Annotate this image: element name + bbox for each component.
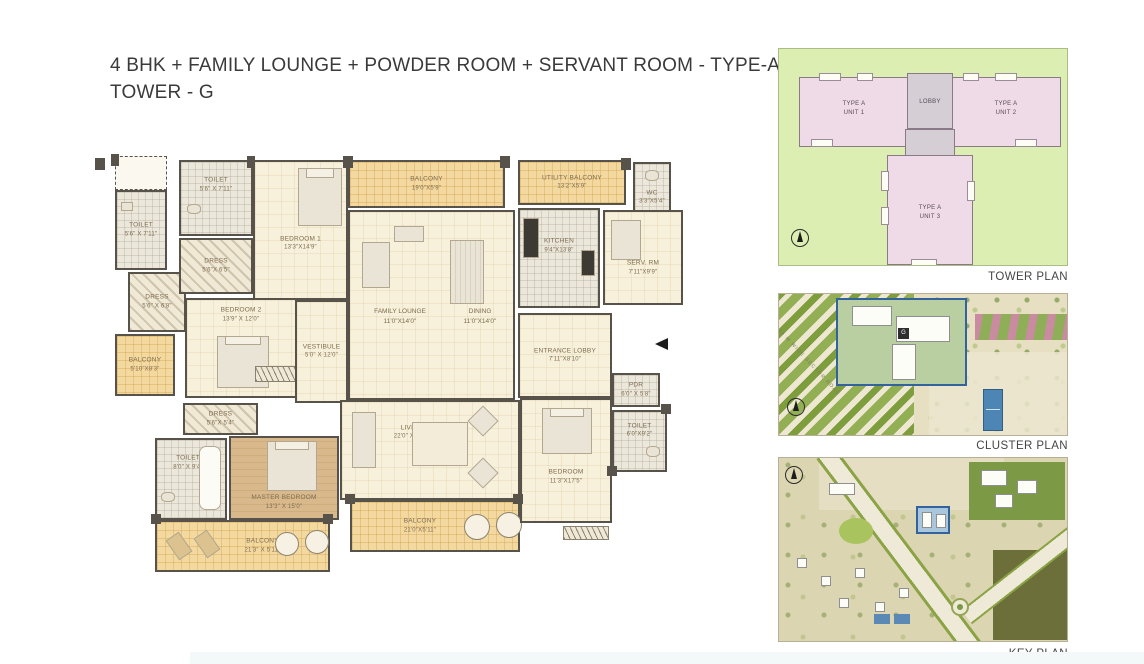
tower-plan-caption: TOWER PLAN <box>778 271 1068 283</box>
wall-pier <box>111 154 119 166</box>
room-bedroom-3: BEDROOM11'3"X17'5" <box>520 398 612 523</box>
sofa-icon <box>352 412 376 468</box>
building-footprint <box>875 602 885 612</box>
balcony-notch <box>963 73 979 81</box>
wall-pier <box>513 494 523 504</box>
room-dress-1: DRESS5'6"X 6'5" <box>179 238 253 294</box>
room-toilet-1: TOILET5'6" X 7'11" <box>115 190 167 270</box>
tennis-court <box>983 389 1003 431</box>
building-footprint <box>797 558 807 568</box>
round-table-icon <box>275 532 299 556</box>
green-cluster <box>969 462 1065 520</box>
room-dress-3: DRESS5'6"X 5'4" <box>183 403 258 435</box>
pillow-icon <box>550 408 584 417</box>
flower-beds <box>975 314 1068 340</box>
room-pdr: PDR6'0" X 5'8" <box>612 373 660 407</box>
room-balcony-1: BALCONY5'10"X8'3" <box>115 334 175 396</box>
armchair-icon <box>467 457 498 488</box>
wall-pier <box>343 156 353 168</box>
balcony-notch <box>1015 139 1037 147</box>
rug-icon <box>412 422 468 466</box>
entry-arrow-icon <box>655 338 668 350</box>
wall-pier <box>607 466 617 476</box>
sports-court <box>874 614 890 624</box>
sofa-icon <box>362 242 390 288</box>
room-dining-label: DINING 11'0"X14'0" <box>446 307 514 327</box>
balcony-notch <box>857 73 873 81</box>
wall-pier <box>151 514 161 524</box>
room-serv-rm: SERV. RM7'11"X9'9" <box>603 210 683 305</box>
tower-unit-2: TYPE AUNIT 2 <box>951 77 1061 147</box>
room-family-lounge-label: FAMILY LOUNGE 11'0"X14'0" <box>352 307 448 327</box>
toilet-icon <box>646 446 660 457</box>
floor-plan: TOILET5'6" X 7'11" DRESS5'6" X 6'8" BALC… <box>95 148 710 598</box>
balcony-notch <box>819 73 841 81</box>
roundabout <box>951 598 969 616</box>
pillow-icon <box>225 336 261 345</box>
dining-table-icon <box>450 240 484 304</box>
footer-strip <box>190 652 1144 664</box>
room-balcony-top: BALCONY19'0"X5'9" <box>348 160 505 208</box>
balcony-notch <box>811 139 833 147</box>
room-bedroom-2: BEDROOM 213'9" X 12'0" <box>185 298 297 398</box>
building-footprint <box>821 576 831 586</box>
closet-area <box>115 156 167 190</box>
tower-unit-3: TYPE AUNIT 3 <box>887 155 973 265</box>
page-title-line1: 4 BHK + FAMILY LOUNGE + POWDER ROOM + SE… <box>110 52 810 79</box>
wall-pier <box>247 156 255 168</box>
room-dress-2: DRESS5'6" X 6'8" <box>128 272 186 332</box>
park-blob <box>839 518 873 544</box>
north-compass-icon <box>785 466 803 484</box>
wall-pier <box>95 158 105 170</box>
cluster-highlight-box: G <box>836 298 967 386</box>
tower-lobby: LOBBY <box>907 73 953 129</box>
bed-icon <box>611 220 641 260</box>
cluster-plan-panel: G 24 M WIDE SECTOR ROAD <box>778 293 1068 436</box>
wall-pier <box>661 404 671 414</box>
room-utility-balcony: UTILITY BALCONY13'2"X5'9" <box>518 160 626 205</box>
building-footprint <box>892 344 916 380</box>
sink-icon <box>121 202 133 211</box>
tower-plan-panel: TYPE AUNIT 1 TYPE AUNIT 2 LOBBY TYPE AUN… <box>778 48 1068 266</box>
balcony-notch <box>995 73 1017 81</box>
building-footprint <box>899 588 909 598</box>
key-highlight-box <box>916 506 950 534</box>
room-kitchen: KITCHEN9'4"X13'8" <box>518 208 600 308</box>
wall-pier <box>345 494 355 504</box>
room-living: LIVING22'0" X 20'5" <box>340 400 520 500</box>
building-footprint <box>829 483 855 495</box>
bathtub-icon <box>199 446 221 510</box>
sofa-icon <box>394 226 424 242</box>
brochure-page: { "title": { "line1": "4 BHK + FAMILY LO… <box>0 0 1144 664</box>
page-title-line2: TOWER - G <box>110 79 810 106</box>
room-balcony-3: BALCONY21'0"X5'11" <box>350 500 520 552</box>
deck-chair-icon <box>166 532 193 561</box>
toilet-icon <box>645 170 659 181</box>
wall-pier <box>500 156 510 168</box>
tower-core <box>905 129 955 157</box>
building-footprint <box>852 306 892 326</box>
room-master-bedroom: MASTER BEDROOM13'3" X 15'0" <box>229 436 339 520</box>
building-footprint <box>839 598 849 608</box>
balcony-notch <box>911 259 937 266</box>
round-table-icon <box>464 514 490 540</box>
cluster-plan-caption: CLUSTER PLAN <box>778 440 1068 452</box>
room-balcony-2: BALCONY21'3" X 5'11" <box>155 520 330 572</box>
wall-pier <box>621 158 631 170</box>
wardrobe-strip <box>563 526 609 540</box>
tower-g-marker: G <box>898 328 909 339</box>
north-compass-icon <box>791 229 809 247</box>
stove-icon <box>581 250 595 276</box>
balcony-notch <box>881 171 889 191</box>
pillow-icon <box>306 168 334 178</box>
toilet-icon <box>161 492 175 502</box>
room-toilet-3: TOILET8'0" X 9'4" <box>155 438 227 520</box>
sports-court <box>894 614 910 624</box>
round-table-icon <box>496 512 522 538</box>
room-entrance-lobby: ENTRANCE LOBBY7'11"X8'10" <box>518 313 612 398</box>
building-footprint <box>855 568 865 578</box>
toilet-icon <box>187 204 201 214</box>
balcony-notch <box>881 207 889 225</box>
balcony-notch <box>967 181 975 201</box>
north-compass-icon <box>787 398 805 416</box>
key-plan-panel <box>778 457 1068 642</box>
room-toilet-4: TOILET6'0"X9'2" <box>612 410 667 472</box>
tower-unit-1: TYPE AUNIT 1 <box>799 77 909 147</box>
counter-icon <box>523 218 539 258</box>
pillow-icon <box>275 441 309 450</box>
room-family-dining-hall: FAMILY LOUNGE 11'0"X14'0" DINING 11'0"X1… <box>348 210 515 400</box>
room-vestibule: VESTIBULE5'0" X 12'0" <box>295 300 348 403</box>
room-toilet-2: TOILET5'6" X 7'11" <box>179 160 253 236</box>
page-title: 4 BHK + FAMILY LOUNGE + POWDER ROOM + SE… <box>110 52 810 106</box>
room-bedroom-1: BEDROOM 113'3"X14'9" <box>253 160 348 300</box>
wall-pier <box>323 514 333 524</box>
